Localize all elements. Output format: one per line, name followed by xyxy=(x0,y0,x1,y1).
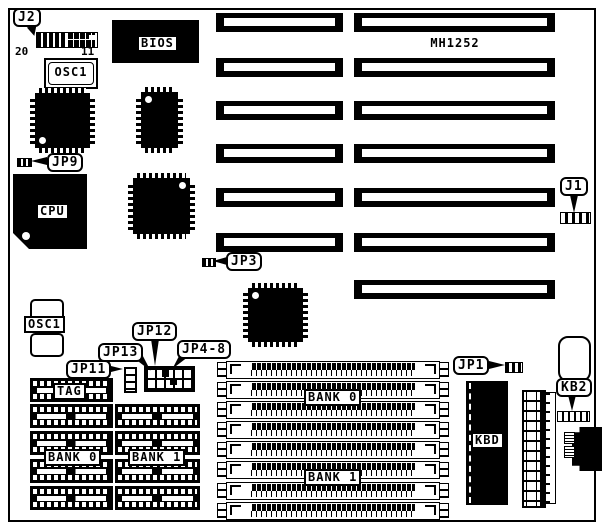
callout-jp12-tail xyxy=(151,339,159,366)
jp9-jumper xyxy=(17,158,32,167)
callout-j1: J1 xyxy=(560,177,588,196)
jp1-jumper xyxy=(505,362,523,373)
callout-jp9-tail xyxy=(31,157,47,165)
isa-slot xyxy=(354,144,555,163)
dip-socket xyxy=(30,486,113,510)
pin1-dot xyxy=(22,232,30,240)
cpu-label: CPU xyxy=(36,203,69,220)
oscillator-osc1-top: OSC1 xyxy=(44,58,98,89)
din-keyboard-connector xyxy=(572,427,602,471)
callout-jp4-8: JP4-8 xyxy=(177,340,231,359)
din-connector-pin xyxy=(564,432,575,444)
callout-jp1-tail xyxy=(489,361,505,369)
qfp-chip xyxy=(128,173,195,239)
dip-bank0-label: BANK 0 xyxy=(44,449,101,466)
isa-slot xyxy=(216,233,343,252)
pin1-dot xyxy=(39,137,46,144)
kbd-label: KBD xyxy=(471,432,504,449)
power-connector xyxy=(522,390,546,508)
qfp-chip xyxy=(243,283,308,347)
callout-jp3-tail xyxy=(213,257,227,265)
j1-header xyxy=(560,212,591,224)
isa-slot xyxy=(216,144,343,163)
isa-slot xyxy=(354,280,555,299)
simm-bank1-label: BANK 1 xyxy=(304,469,361,486)
qfp-chip xyxy=(136,87,183,153)
dip-socket xyxy=(115,486,200,510)
power-connector-pins xyxy=(545,392,556,504)
bios-label: BIOS xyxy=(137,35,178,52)
jp4-8-jumper-block xyxy=(144,366,195,392)
isa-slot xyxy=(354,13,555,32)
din-connector-footprint xyxy=(558,336,591,382)
dip-socket xyxy=(115,404,200,428)
isa-slot xyxy=(354,58,555,77)
callout-j2: J2 xyxy=(13,8,41,27)
simm-socket xyxy=(226,502,440,520)
isa-slot xyxy=(354,188,555,207)
isa-slot xyxy=(354,101,555,120)
j2-pin11-label: 11 xyxy=(81,45,94,58)
osc1-mid-bottom-cap xyxy=(30,333,64,357)
tag-label: TAG xyxy=(53,383,86,400)
simm-bank0-label: BANK 0 xyxy=(304,389,361,406)
pin1-dot xyxy=(179,182,186,189)
callout-kb2: KB2 xyxy=(556,378,592,397)
callout-jp12: JP12 xyxy=(132,322,177,341)
pin1-dot xyxy=(145,96,152,103)
isa-slot xyxy=(216,13,343,32)
pin1-dot xyxy=(252,292,259,299)
osc1-mid-label: OSC1 xyxy=(24,316,65,333)
qfp-chip xyxy=(30,88,95,153)
j2-pin20-label: 20 xyxy=(15,45,28,58)
callout-kb2-tail xyxy=(568,395,576,411)
simm-socket xyxy=(226,421,440,439)
isa-slot xyxy=(216,188,343,207)
isa-slot xyxy=(354,233,555,252)
callout-jp3: JP3 xyxy=(226,252,262,271)
isa-slot xyxy=(216,101,343,120)
callout-jp9: JP9 xyxy=(47,153,83,172)
callout-j1-tail xyxy=(570,195,578,213)
simm-socket xyxy=(226,441,440,459)
callout-jp1: JP1 xyxy=(453,356,489,375)
osc1-top-label: OSC1 xyxy=(48,62,94,85)
callout-jp11: JP11 xyxy=(66,360,111,379)
isa-slot xyxy=(216,58,343,77)
din-connector-pin xyxy=(564,446,575,458)
dip-socket xyxy=(30,404,113,428)
simm-socket xyxy=(226,361,440,379)
jp11-jumper-block xyxy=(124,367,137,393)
kb2-header xyxy=(557,411,590,422)
dip-bank1-label: BANK 1 xyxy=(128,449,185,466)
board-title: MH1252 xyxy=(410,36,500,50)
